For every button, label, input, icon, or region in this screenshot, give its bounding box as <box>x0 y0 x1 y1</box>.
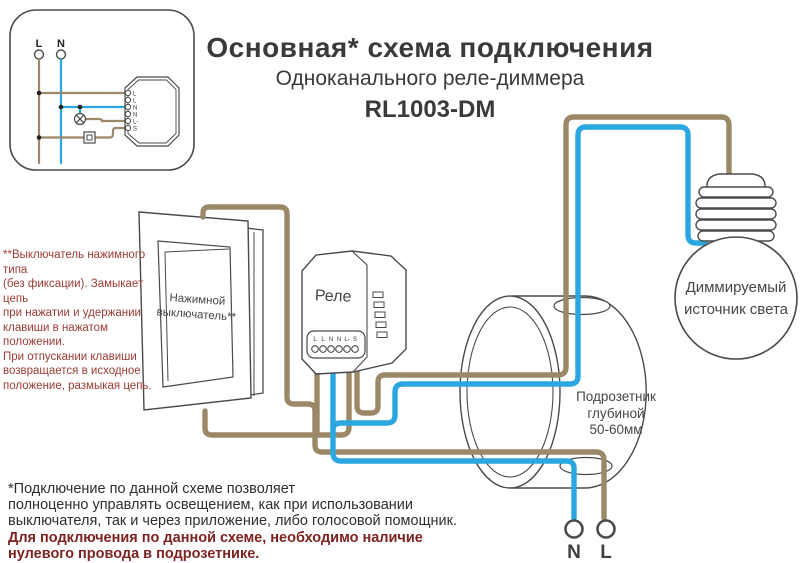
footnote-line: *Подключение по данной схеме позволяет <box>8 481 478 497</box>
svg-text:S: S <box>353 337 357 343</box>
inset-neutral-to-relay <box>61 107 125 113</box>
mains-l-label: L <box>600 542 612 563</box>
svg-text:N: N <box>133 106 137 112</box>
inset-lamp-wire <box>86 119 126 121</box>
mains-n-terminal <box>566 521 583 538</box>
svg-text:N: N <box>329 337 333 343</box>
svg-text:50-60мм: 50-60мм <box>589 422 642 437</box>
switch-note-line: клавиши в нажатом положении. <box>3 321 153 350</box>
bulb-globe <box>675 237 797 359</box>
inset-l-terminal <box>35 50 44 59</box>
relay-terminal-strip <box>307 331 365 358</box>
mains-l-terminal <box>598 521 615 538</box>
bulb-label-line2: источник света <box>684 301 789 318</box>
svg-text:L-: L- <box>133 120 138 126</box>
inset-switch-wire <box>39 128 125 138</box>
inset-diagram: L N <box>10 10 194 170</box>
switch-note-line: При отпускании клавиши <box>3 350 153 365</box>
inset-wires <box>39 59 125 163</box>
mounting-box-top-entry <box>554 298 610 315</box>
wiring-diagram: Реле L L N N L- S Нажимной выключатель**… <box>0 0 800 563</box>
lamp-icon <box>75 114 86 125</box>
wiring <box>203 117 729 518</box>
inset-n-label: N <box>57 38 65 50</box>
light-bulb: Диммируемый источник света <box>675 174 797 359</box>
bulb-threads <box>696 187 776 241</box>
svg-text:Подрозетник: Подрозетник <box>576 389 656 404</box>
title-block: Основная* схема подключения Одноканально… <box>205 32 655 126</box>
footnote: *Подключение по данной схеме позволяет п… <box>8 481 478 562</box>
svg-text:N: N <box>133 113 137 119</box>
inset-l-label: L <box>36 38 43 50</box>
svg-text:N: N <box>337 337 341 343</box>
svg-text:глубиной: глубиной <box>587 406 644 421</box>
model-number: RL1003-DM <box>205 94 655 126</box>
footnote-line: полноценно управлять освещением, как при… <box>8 497 478 513</box>
footnote-warning-line: нулевого провода в подрозетнике. <box>8 546 478 562</box>
footnote-warning-line: Для подключения по данной схеме, необход… <box>8 530 478 546</box>
footnote-line: выключателя, так и через приложение, либ… <box>8 513 478 529</box>
switch-icon <box>84 132 95 143</box>
mains-terminals: N L <box>566 521 615 563</box>
page-title: Основная* схема подключения <box>205 32 655 64</box>
switch-note-line: при нажатии и удержании <box>3 306 153 321</box>
switch-note-line: (без фиксации). Замыкает цепь <box>3 277 153 306</box>
relay-module: Реле L L N N L- S <box>302 251 406 374</box>
switch-note-line: **Выключатель нажимного типа <box>3 248 153 277</box>
svg-text:L-: L- <box>344 337 349 343</box>
switch-note-line: возвращается в исходное <box>3 364 153 379</box>
svg-text:S: S <box>133 127 137 133</box>
inset-relay-body <box>125 77 179 146</box>
mains-n-label: N <box>567 542 581 563</box>
switch-note-line: положение, размыкая цепь. <box>3 379 153 394</box>
inset-n-terminal <box>57 50 66 59</box>
relay-label: Реле <box>315 287 352 305</box>
switch-note: **Выключатель нажимного типа (без фиксац… <box>3 248 153 393</box>
bulb-label-line1: Диммируемый <box>686 279 787 296</box>
page-subtitle: Одноканального реле-диммера <box>205 64 655 94</box>
